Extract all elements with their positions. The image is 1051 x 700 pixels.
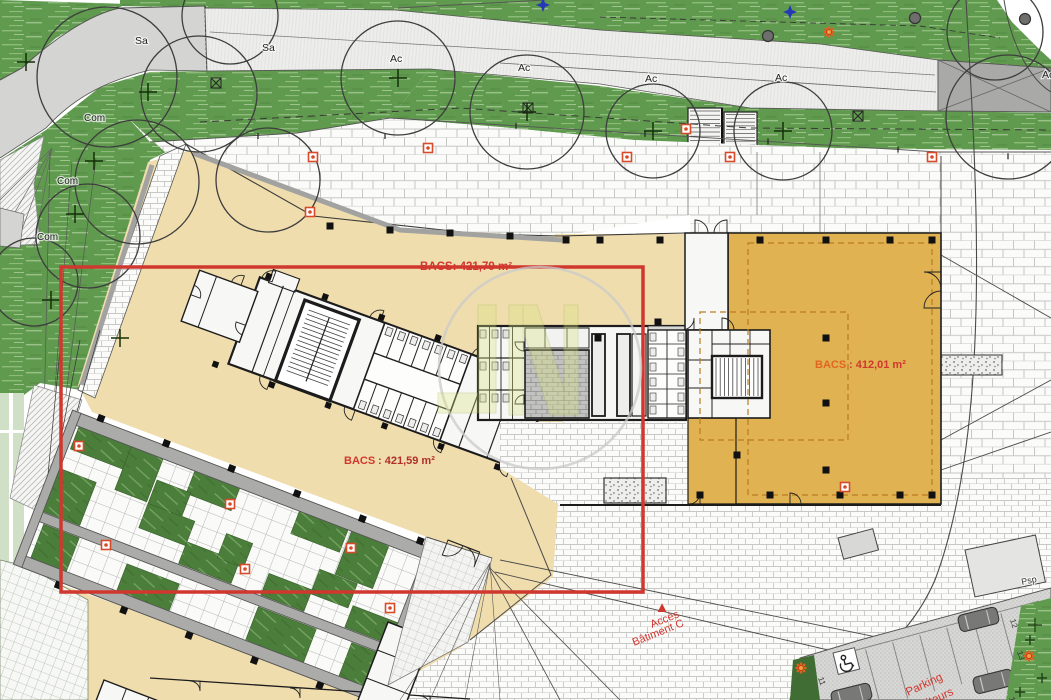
svg-text:Ac: Ac bbox=[775, 72, 787, 84]
svg-text:: 412,01 m²: : 412,01 m² bbox=[849, 359, 906, 371]
svg-text:Ac: Ac bbox=[645, 73, 657, 85]
svg-text:Ac: Ac bbox=[518, 62, 530, 74]
svg-text:: 421,59 m²: : 421,59 m² bbox=[378, 455, 435, 467]
svg-text:Ac: Ac bbox=[390, 53, 402, 65]
svg-text:Com: Com bbox=[57, 176, 78, 187]
svg-text:BACS: 421,79 m²: BACS: 421,79 m² bbox=[420, 261, 512, 273]
svg-text:Com: Com bbox=[37, 232, 58, 243]
svg-text:BACS: BACS bbox=[815, 359, 846, 371]
svg-text:Ac: Ac bbox=[1042, 69, 1051, 81]
svg-text:BACS: BACS bbox=[344, 455, 375, 467]
svg-text:Sa: Sa bbox=[262, 42, 275, 54]
svg-text:Sa: Sa bbox=[135, 35, 148, 47]
svg-text:Com: Com bbox=[84, 113, 105, 124]
